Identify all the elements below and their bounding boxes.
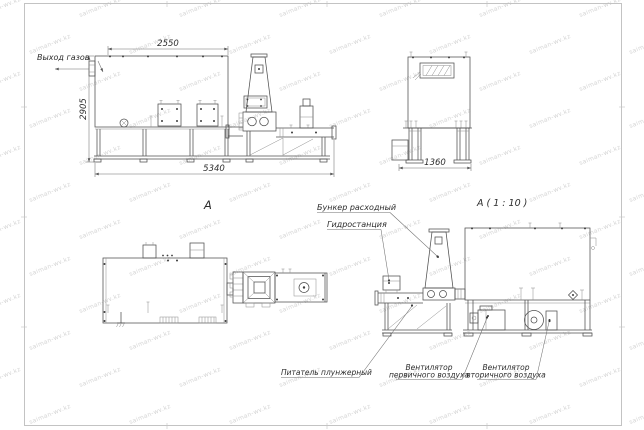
- technical-drawing: 2550 2905 5340 Выход газов А: [0, 0, 644, 430]
- furnace-body-plan: [103, 258, 227, 323]
- feeder-plan: [275, 273, 327, 302]
- label-primary-fan-line2: первичного воздуха: [389, 371, 469, 380]
- label-feed-hopper: Бункер расходный: [317, 203, 396, 212]
- furnace-body-detail: [465, 228, 590, 300]
- hatch-door-1: [158, 104, 181, 126]
- primary-fan-unit: [478, 310, 505, 330]
- top-nozzle-2: [190, 243, 204, 258]
- furnace-body-front: [408, 57, 470, 128]
- label-gas-outlet: Выход газов: [37, 53, 90, 62]
- dim-top-width: 2550: [157, 39, 179, 49]
- gas-outlet-flange: [89, 61, 95, 76]
- view-front-elevation: 1360: [392, 52, 472, 171]
- furnace-body-side: [95, 56, 228, 127]
- drawing-sheet: saiman-wv.kzsaiman-wv.kzsaiman-wv.kzsaim…: [0, 0, 644, 430]
- hydraulic-station-box: [383, 276, 400, 290]
- label-hydraulic-station: Гидростанция: [327, 220, 387, 229]
- side-box: [392, 140, 408, 160]
- dim-total-length: 5340: [203, 164, 225, 174]
- view-a-arrow: [98, 61, 103, 72]
- label-view-a: А: [203, 198, 212, 212]
- annotations: А ( 1 : 10 ) Бункер расходный Гидростанц…: [281, 198, 551, 380]
- hopper-tower-detail: [425, 232, 453, 288]
- hatch-door-2: [197, 104, 218, 126]
- label-detail-a: А ( 1 : 10 ): [476, 198, 527, 209]
- view-detail-a: [375, 223, 596, 336]
- top-nozzle-1: [143, 245, 156, 258]
- label-plunger-feeder: Питатель плунжерный: [281, 368, 372, 377]
- dimensions-side-view: 2550 2905 5340 Выход газов А: [37, 39, 334, 212]
- dim-left-height: 2905: [79, 98, 89, 120]
- dim-front-width: 1360: [424, 158, 446, 168]
- view-side-elevation: [89, 54, 336, 162]
- secondary-fan-unit: [525, 311, 544, 330]
- label-secondary-fan-line2: вторичного воздуха: [466, 371, 546, 380]
- view-plan: [103, 242, 327, 327]
- frame-ticks: [21, 1, 625, 429]
